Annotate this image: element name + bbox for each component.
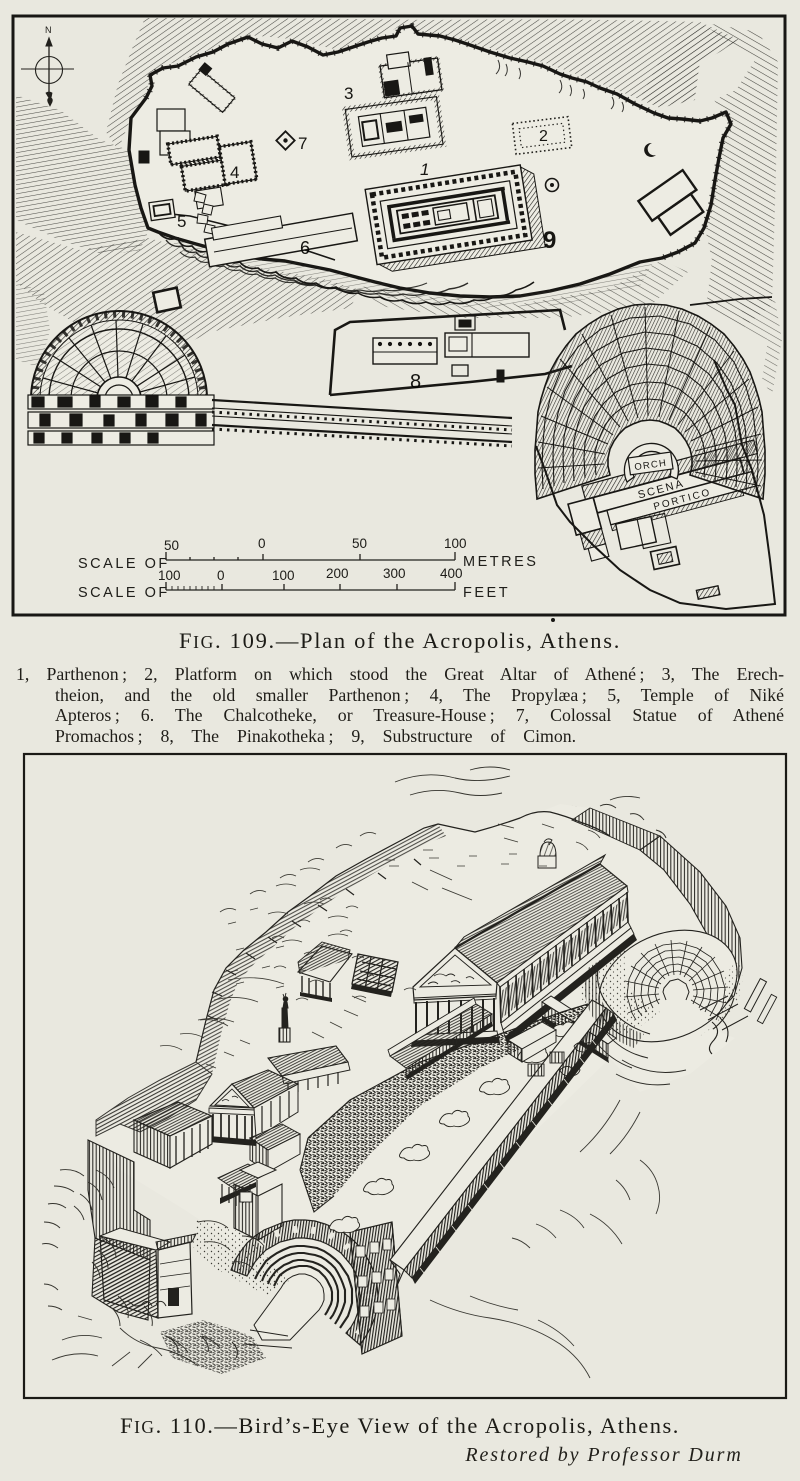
svg-text:100: 100 (444, 536, 467, 551)
svg-text:400: 400 (440, 566, 463, 581)
svg-text:6: 6 (300, 238, 310, 258)
svg-text:8: 8 (410, 371, 421, 393)
svg-text:0: 0 (217, 568, 225, 583)
svg-text:FEET: FEET (463, 585, 510, 601)
svg-text:200: 200 (326, 566, 349, 581)
svg-text:100: 100 (158, 568, 181, 583)
svg-text:SCALE OF: SCALE OF (78, 556, 170, 572)
svg-text:1: 1 (420, 160, 429, 179)
svg-text:9: 9 (543, 227, 556, 254)
svg-text:50: 50 (352, 536, 367, 551)
svg-text:0: 0 (258, 536, 266, 551)
svg-text:3: 3 (344, 84, 353, 103)
svg-text:100: 100 (272, 568, 295, 583)
svg-text:7: 7 (298, 134, 307, 153)
svg-text:4: 4 (230, 163, 239, 182)
svg-text:300: 300 (383, 566, 406, 581)
svg-text:N: N (45, 25, 52, 35)
svg-text:2: 2 (539, 128, 548, 145)
svg-text:5: 5 (177, 212, 186, 231)
svg-text:METRES: METRES (463, 554, 538, 570)
svg-text:SCALE OF: SCALE OF (78, 585, 170, 601)
svg-text:50: 50 (164, 538, 179, 553)
